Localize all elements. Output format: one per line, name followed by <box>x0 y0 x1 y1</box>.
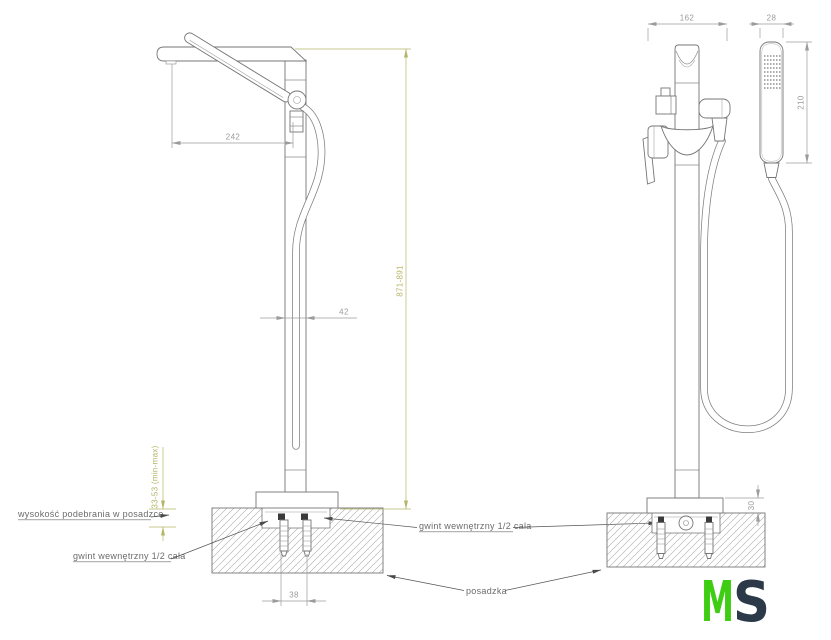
technical-drawing: 242 42 871-891 33-53 (min-max) 38 wysoko… <box>0 0 831 640</box>
dim-body-width: 162 <box>648 14 727 42</box>
logo-letter-m: M <box>701 570 734 635</box>
base-flange <box>256 492 338 508</box>
handset-holder <box>699 99 730 118</box>
hose-connector <box>290 111 303 132</box>
dim-spout-reach: 242 <box>172 64 293 148</box>
label-floor-text: posadzka <box>466 586 507 596</box>
dim-handset-length: 210 <box>786 42 812 163</box>
side-view <box>157 31 383 573</box>
supply-connection <box>679 516 693 530</box>
dim-body-width-value: 162 <box>680 14 695 23</box>
hose-elbow <box>712 118 727 141</box>
spout-outlet <box>166 61 176 64</box>
diverter-knob <box>661 88 670 96</box>
anchor-fitting <box>278 514 285 521</box>
dim-flange-height-value: 30 <box>747 501 756 511</box>
dim-anchor-spacing-value: 38 <box>289 591 299 600</box>
front-view <box>607 42 789 567</box>
anchor-bolt <box>303 520 311 551</box>
diverter-body <box>656 96 676 114</box>
label-thread-left-text: gwint wewnętrzny 1/2 cala <box>73 551 186 561</box>
drawing-sheet: 242 42 871-891 33-53 (min-max) 38 wysoko… <box>0 0 831 640</box>
logo-letter-s: S <box>733 570 770 635</box>
anchor-fitting <box>658 517 664 523</box>
shower-hose <box>704 141 789 429</box>
anchor-fitting <box>301 514 308 521</box>
base-flange <box>647 498 723 513</box>
anchor-bolt <box>657 523 665 554</box>
dim-column-depth: 42 <box>260 308 357 319</box>
floor-recess <box>262 508 330 528</box>
dim-handset-width-value: 28 <box>767 14 777 23</box>
handset-connector <box>764 163 779 178</box>
label-thread-right-text: gwint wewnętrzny 1/2 cala <box>419 521 532 531</box>
anchor-bolt <box>705 523 713 554</box>
brand-logo: M S <box>701 570 770 635</box>
dim-height-range-value: 871-891 <box>396 265 405 297</box>
dim-undercut-range-value: 33-53 (min-max) <box>151 445 160 508</box>
label-floor: posadzka <box>387 570 601 596</box>
wand-pivot <box>288 91 306 109</box>
label-undercut: wysokość podebrania w posadzce <box>17 509 169 520</box>
anchor-fitting <box>706 517 712 523</box>
riser-column <box>675 45 699 498</box>
dim-handset-length-value: 210 <box>797 95 806 110</box>
dim-undercut-range: 33-53 (min-max) <box>149 445 176 541</box>
dim-spout-reach-value: 242 <box>226 133 241 142</box>
anchor-bolt <box>280 520 288 551</box>
label-undercut-text: wysokość podebrania w posadzce <box>17 509 164 519</box>
hand-shower-wand <box>183 31 293 104</box>
dim-column-depth-value: 42 <box>339 308 349 317</box>
spout-flare <box>661 126 713 155</box>
dim-handset-width: 28 <box>749 14 794 39</box>
